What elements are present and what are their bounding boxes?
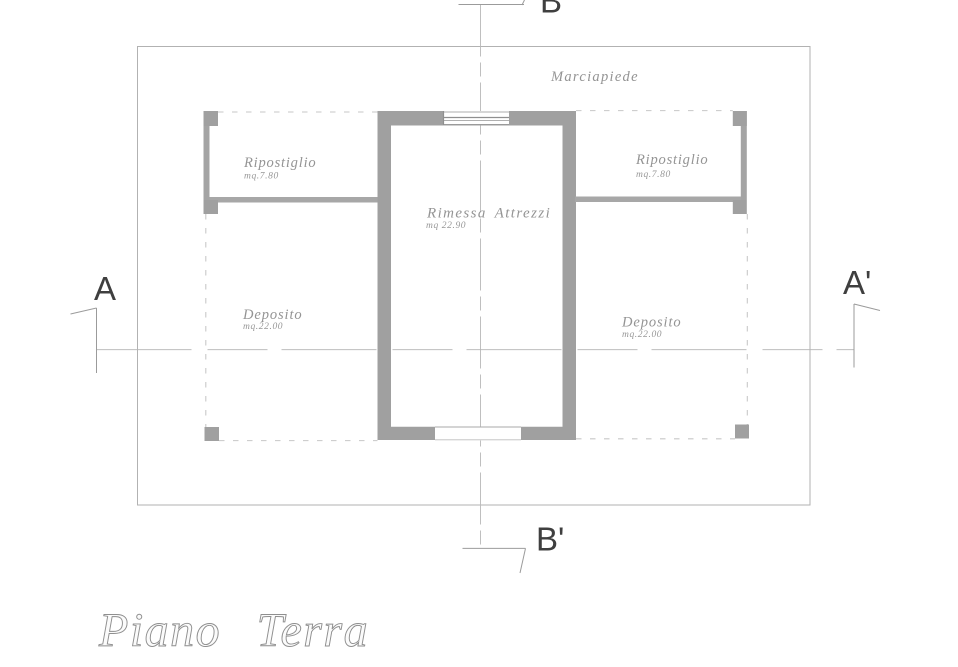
svg-text:mq.7.80: mq.7.80 [636,170,671,180]
svg-text:Rimessa Attrezzi: Rimessa Attrezzi [426,206,551,222]
svg-text:Deposito: Deposito [621,315,682,331]
svg-text:mq.22.00: mq.22.00 [622,330,662,340]
svg-text:A': A' [843,264,871,301]
svg-text:B: B [540,0,562,20]
svg-text:mq.7.80: mq.7.80 [244,172,279,182]
svg-text:Deposito: Deposito [242,307,303,323]
svg-text:B': B' [536,521,564,558]
svg-text:Ripostiglio: Ripostiglio [243,155,316,171]
svg-text:mq 22.90: mq 22.90 [426,221,466,231]
svg-text:mq.22.00: mq.22.00 [243,322,283,332]
svg-text:Marciapiede: Marciapiede [550,69,639,85]
svg-text:Piano Terra: Piano Terra [98,604,369,657]
svg-text:Ripostiglio: Ripostiglio [635,152,708,168]
svg-text:A: A [94,270,116,307]
